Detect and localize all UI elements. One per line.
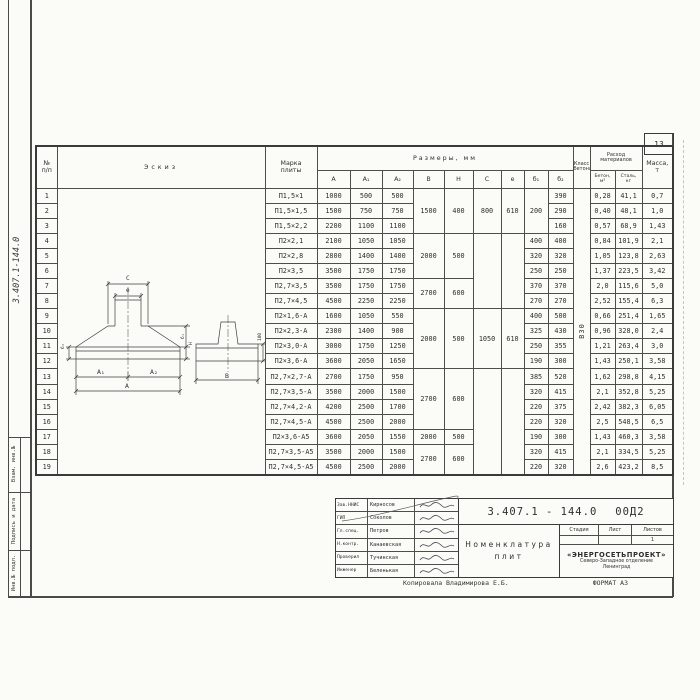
cell-mass: 3,0 [642, 339, 673, 354]
person-role: Гл.спец. [336, 525, 368, 537]
cell-a: 1600 [317, 309, 350, 324]
cell-a: 2200 [317, 218, 350, 233]
cell-a1: 1750 [350, 278, 382, 293]
cell-a1: 1750 [350, 369, 382, 384]
cell-num: 4 [36, 233, 57, 248]
cell-beton: 2,1 [590, 444, 615, 459]
cell-beton: 2,1 [590, 384, 615, 399]
drawing-sheet: { "page": { "sheet_no": "13", "copied": … [0, 0, 700, 700]
cell-mass: 1,0 [642, 203, 673, 218]
cell-a2: 500 [382, 188, 413, 203]
cell-b1: 220 [524, 414, 548, 429]
side-view-outline [196, 322, 258, 361]
cell-steel: 155,4 [615, 294, 642, 309]
cell-b2: 320 [548, 248, 573, 263]
cell-a2: 1700 [382, 399, 413, 414]
header-class-2: бетона [574, 167, 590, 173]
frame-left-inner [30, 0, 32, 596]
cell-num: 7 [36, 278, 57, 293]
cell-a2: 750 [382, 203, 413, 218]
cell-marka: П1,5×1 [265, 188, 317, 203]
cell-mass: 5,25 [642, 384, 673, 399]
cell-a2: 1750 [382, 263, 413, 278]
cell-b2: 290 [548, 203, 573, 218]
cell-b1: 400 [524, 309, 548, 324]
cell-b: 2000 [413, 309, 444, 369]
cell-a2: 900 [382, 324, 413, 339]
cell-mass: 6,3 [642, 294, 673, 309]
sketch-drawing: С е А₁ А₂ А б₂ б₁ Н В 10 [58, 189, 266, 474]
drawing-title: Номенклатура плит [459, 525, 560, 577]
cell-marka: П2,7×4,5 [265, 294, 317, 309]
dim-b-label: В [225, 372, 229, 380]
stage-value [560, 536, 599, 544]
sheets-label: Листов [632, 525, 673, 535]
scan-edge [683, 140, 684, 485]
dim-a2-label: А₂ [150, 368, 158, 376]
cell-a2: 1100 [382, 218, 413, 233]
cell-a: 2300 [317, 324, 350, 339]
dim-b1-label: б₁ [179, 333, 186, 339]
header-col-e: е [501, 170, 524, 188]
cell-b2: 415 [548, 384, 573, 399]
cell-steel: 334,5 [615, 444, 642, 459]
plate-nomenclature-table: № п/п Эскиз Марка плиты Размеры, мм Клас… [35, 145, 674, 476]
cell-a: 2700 [317, 369, 350, 384]
header-steel: Сталь, кг [615, 170, 642, 188]
cell-a1: 2500 [350, 460, 382, 475]
cell-steel: 68,9 [615, 218, 642, 233]
cell-num: 15 [36, 399, 57, 414]
cell-h: 600 [444, 444, 473, 474]
cell-num: 12 [36, 354, 57, 369]
cell-a1: 1050 [350, 309, 382, 324]
dim-a-label: А [125, 382, 129, 390]
cell-marka: П1,5×1,5 [265, 203, 317, 218]
titleblock-person-row: ИнженерБеленькая [336, 565, 458, 577]
cell-a2: 1650 [382, 354, 413, 369]
person-signature [415, 552, 458, 564]
signature-icon [418, 540, 456, 550]
cell-steel: 298,8 [615, 369, 642, 384]
cell-a2: 1250 [382, 339, 413, 354]
cell-a: 1500 [317, 203, 350, 218]
organization-name: «ЭНЕРГОСЕТЬПРОЕКТ» [567, 551, 666, 559]
cell-b1: 400 [524, 233, 548, 248]
cell-steel: 328,0 [615, 324, 642, 339]
cell-b2: 300 [548, 354, 573, 369]
cell-num: 16 [36, 414, 57, 429]
cell-marka: П2,7×3,5 [265, 278, 317, 293]
sheet-value [599, 536, 632, 544]
cell-b1: 270 [524, 294, 548, 309]
header-col-h: Н [444, 170, 473, 188]
cell-steel: 548,5 [615, 414, 642, 429]
cell-mass: 2,63 [642, 248, 673, 263]
table-row: 1 С е А₁ А₂ А б₂ б₁ Н [36, 188, 673, 203]
cell-b: 2700 [413, 369, 444, 429]
titleblock-flourish [338, 495, 463, 523]
frame-bottom [8, 596, 673, 598]
cell-a2: 1500 [382, 384, 413, 399]
cell-marka: П2×2,3-А [265, 324, 317, 339]
cell-b1: 190 [524, 354, 548, 369]
cell-a2: 1050 [382, 233, 413, 248]
cell-a2: 1750 [382, 278, 413, 293]
dim-h-label: Н [188, 342, 194, 345]
cell-mass: 8,5 [642, 460, 673, 475]
person-role: Проверил [336, 552, 368, 564]
header-col-b1: б₁ [524, 170, 548, 188]
cell-b2: 320 [548, 460, 573, 475]
cell-steel: 223,5 [615, 263, 642, 278]
cell-marka: П2,7×3,5-А5 [265, 444, 317, 459]
cell-c [473, 233, 501, 309]
dim-100-label: 100 [257, 332, 263, 340]
cell-a: 4500 [317, 414, 350, 429]
organization-city: Ленинград [603, 565, 631, 571]
cell-a2: 2250 [382, 294, 413, 309]
person-signature [415, 525, 458, 537]
cell-a: 4500 [317, 294, 350, 309]
cell-e [501, 369, 524, 475]
cell-b: 2000 [413, 233, 444, 278]
cell-a1: 1750 [350, 339, 382, 354]
cell-b1: 325 [524, 324, 548, 339]
cell-a1: 500 [350, 188, 382, 203]
cell-a1: 2050 [350, 354, 382, 369]
cell-mass: 3,58 [642, 429, 673, 444]
cell-beton: 1,43 [590, 354, 615, 369]
margin-label-inv: Инв.№ подл. [11, 545, 17, 601]
cell-steel: 263,4 [615, 339, 642, 354]
cell-b2: 500 [548, 309, 573, 324]
cell-a: 3500 [317, 444, 350, 459]
cell-num: 6 [36, 263, 57, 278]
drawing-title-line2: плит [495, 551, 524, 563]
header-mass-2: т [643, 167, 673, 174]
cell-mass: 6,5 [642, 414, 673, 429]
cell-a1: 2500 [350, 399, 382, 414]
copied-by: Копировала Владимирова Е.Б. [403, 579, 509, 587]
cell-beton: 1,05 [590, 248, 615, 263]
margin-label-vzam: Взам. инв.№ [11, 434, 17, 494]
cell-num: 10 [36, 324, 57, 339]
cell-beton: 0,28 [590, 188, 615, 203]
cell-beton: 0,96 [590, 324, 615, 339]
document-number-row: 3.407.1 - 144.0 00Д2 [459, 499, 673, 525]
cell-e: 610 [501, 188, 524, 233]
header-col-a: А [317, 170, 350, 188]
cell-mass: 0,7 [642, 188, 673, 203]
cell-b1: 320 [524, 248, 548, 263]
signature-icon [418, 553, 456, 563]
header-mass: Масса, т [642, 146, 673, 188]
cell-marka: П2×3,0-А [265, 339, 317, 354]
cell-steel: 101,9 [615, 233, 642, 248]
stage-value-row: 1 [560, 536, 673, 545]
cell-beton: 0,84 [590, 233, 615, 248]
organization: «ЭНЕРГОСЕТЬПРОЕКТ» Северо-Западное отдел… [560, 545, 673, 577]
cell-a: 2100 [317, 233, 350, 248]
cell-a1: 1400 [350, 248, 382, 263]
cell-c [473, 369, 501, 475]
header-consumption-2: материалов [591, 158, 642, 164]
person-signature [415, 539, 458, 551]
cell-a: 4500 [317, 460, 350, 475]
cell-beton: 2,42 [590, 399, 615, 414]
cell-mass: 2,1 [642, 233, 673, 248]
cell-marka: П2×3,5 [265, 263, 317, 278]
cell-a: 2800 [317, 248, 350, 263]
cell-num: 18 [36, 444, 57, 459]
cell-a: 3500 [317, 263, 350, 278]
cell-mass: 6,05 [642, 399, 673, 414]
cell-a: 3500 [317, 278, 350, 293]
titleblock-person-row: Гл.спец.Петров [336, 525, 458, 538]
cell-b2: 390 [548, 188, 573, 203]
dim-c-label: С [126, 275, 130, 282]
cell-mass: 1,43 [642, 218, 673, 233]
cell-marka: П2,7×4,2-А [265, 399, 317, 414]
cell-mass: 2,4 [642, 324, 673, 339]
cell-num: 17 [36, 429, 57, 444]
person-role: Инженер [336, 565, 368, 577]
cell-b: 2700 [413, 278, 444, 308]
stage-label: Стадия [560, 525, 599, 535]
dim-b2-label: б₂ [59, 343, 66, 348]
sheets-value: 1 [632, 536, 673, 544]
cell-mass: 4,15 [642, 369, 673, 384]
cell-h: 600 [444, 369, 473, 429]
cell-beton: 2,5 [590, 414, 615, 429]
cell-a2: 1550 [382, 429, 413, 444]
header-beton: Бетон, м³ [590, 170, 615, 188]
cell-num: 9 [36, 309, 57, 324]
cell-a1: 2250 [350, 294, 382, 309]
cell-a2: 1400 [382, 248, 413, 263]
cell-beton: 1,62 [590, 369, 615, 384]
drawing-title-line1: Номенклатура [465, 539, 553, 551]
cell-num: 5 [36, 248, 57, 263]
cell-marka: П1,5×2,2 [265, 218, 317, 233]
header-beton-2: м³ [591, 179, 615, 184]
cell-beton: 1,21 [590, 339, 615, 354]
header-col-a2: А₂ [382, 170, 413, 188]
cell-beton: 1,43 [590, 429, 615, 444]
cell-beton: 1,37 [590, 263, 615, 278]
cell-concrete-class: В30 [573, 188, 590, 475]
cell-num: 8 [36, 294, 57, 309]
signature-icon [418, 526, 456, 536]
header-mass-1: Масса, [643, 160, 673, 167]
cell-c: 800 [473, 188, 501, 233]
cell-b2: 270 [548, 294, 573, 309]
header-num-sub: п/п [37, 167, 57, 174]
cell-marka: П2,7×2,7-А [265, 369, 317, 384]
cell-a1: 2500 [350, 414, 382, 429]
cell-num: 3 [36, 218, 57, 233]
cell-a: 3600 [317, 429, 350, 444]
cell-num: 2 [36, 203, 57, 218]
person-name: Канаевская [368, 539, 415, 551]
side-document-number: 3.407.1-144.0 [12, 225, 22, 315]
cell-num: 1 [36, 188, 57, 203]
header-marka: Марка плиты [265, 146, 317, 188]
title-block-right: 3.407.1 - 144.0 00Д2 Номенклатура плит С… [459, 499, 673, 577]
cell-h: 600 [444, 278, 473, 308]
person-signature [415, 565, 458, 577]
cell-marka: П2,7×4,5-А5 [265, 460, 317, 475]
cell-b1: 220 [524, 399, 548, 414]
cell-a2: 1500 [382, 444, 413, 459]
cell-a: 3000 [317, 339, 350, 354]
cell-a2: 950 [382, 369, 413, 384]
cell-beton: 2,52 [590, 294, 615, 309]
cell-marka: П2×1,6-А [265, 309, 317, 324]
person-name: Петров [368, 525, 415, 537]
cell-b1: 190 [524, 429, 548, 444]
cell-h: 500 [444, 233, 473, 278]
cell-b2: 300 [548, 429, 573, 444]
cell-a1: 2050 [350, 429, 382, 444]
cell-marka: П2×2,1 [265, 233, 317, 248]
sheet-label: Лист [599, 525, 632, 535]
cell-b2: 250 [548, 263, 573, 278]
cell-a1: 2000 [350, 444, 382, 459]
cell-mass: 1,65 [642, 309, 673, 324]
header-col-a1: А₁ [350, 170, 382, 188]
cell-steel: 48,1 [615, 203, 642, 218]
cell-b1: 320 [524, 444, 548, 459]
cell-marka: П2,7×3,5-А [265, 384, 317, 399]
cell-steel: 460,3 [615, 429, 642, 444]
signature-icon [418, 566, 456, 576]
cell-beton: 2,0 [590, 278, 615, 293]
cell-a: 4200 [317, 399, 350, 414]
format-label: ФОРМАТ А3 [593, 579, 628, 587]
header-consumption: Расход материалов [590, 146, 642, 170]
dim-e-label: е [126, 287, 130, 294]
cell-b1: 320 [524, 384, 548, 399]
cell-beton: 0,66 [590, 309, 615, 324]
cell-beton: 0,57 [590, 218, 615, 233]
cell-b1: 220 [524, 460, 548, 475]
cell-marka: П2×3,6-А [265, 354, 317, 369]
cell-a: 3600 [317, 354, 350, 369]
cell-a: 3500 [317, 384, 350, 399]
cell-mass: 5,25 [642, 444, 673, 459]
document-number: 3.407.1 - 144.0 [487, 506, 597, 518]
cell-b2: 520 [548, 369, 573, 384]
cell-a1: 2000 [350, 384, 382, 399]
header-num-top: № [37, 160, 57, 167]
cell-b1: 370 [524, 278, 548, 293]
header-col-b2: б₂ [548, 170, 573, 188]
cell-num: 14 [36, 384, 57, 399]
header-class: Класс бетона [573, 146, 590, 188]
cell-steel: 250,1 [615, 354, 642, 369]
sketch-cell: С е А₁ А₂ А б₂ б₁ Н В 10 [57, 188, 265, 475]
cell-marka: П2,7×4,5-А [265, 414, 317, 429]
cell-b1: 250 [524, 263, 548, 278]
cell-b2: 415 [548, 444, 573, 459]
cell-marka: П2×2,8 [265, 248, 317, 263]
cell-b2: 375 [548, 399, 573, 414]
header-steel-2: кг [616, 179, 642, 184]
cell-h: 500 [444, 309, 473, 369]
cell-a1: 1050 [350, 233, 382, 248]
concrete-class-label: В30 [578, 323, 586, 339]
cell-c: 1050 [473, 309, 501, 369]
margin-inner-line [20, 437, 21, 596]
cell-beton: 0,40 [590, 203, 615, 218]
cell-b2: 355 [548, 339, 573, 354]
document-suffix: 00Д2 [615, 506, 644, 518]
dim-a1-label: А₁ [97, 368, 105, 376]
cell-e [501, 233, 524, 309]
header-marka-1: Марка [266, 160, 317, 167]
cell-a1: 1750 [350, 263, 382, 278]
cell-b2: 400 [548, 233, 573, 248]
person-name: Беленькая [368, 565, 415, 577]
cell-b1: 385 [524, 369, 548, 384]
cell-steel: 382,3 [615, 399, 642, 414]
person-role: Н.контр. [336, 539, 368, 551]
cell-b2: 370 [548, 278, 573, 293]
cell-a2: 2000 [382, 460, 413, 475]
cell-b: 1500 [413, 188, 444, 233]
cell-h: 400 [444, 188, 473, 233]
cell-steel: 41,1 [615, 188, 642, 203]
table-body: 1 С е А₁ А₂ А б₂ б₁ Н [36, 188, 673, 475]
cell-steel: 251,4 [615, 309, 642, 324]
cell-num: 13 [36, 369, 57, 384]
header-col-c: С [473, 170, 501, 188]
table-header: № п/п Эскиз Марка плиты Размеры, мм Клас… [36, 146, 673, 188]
cell-b: 2000 [413, 429, 444, 444]
cell-a2: 550 [382, 309, 413, 324]
cell-steel: 352,8 [615, 384, 642, 399]
cell-a1: 750 [350, 203, 382, 218]
cell-b1: 200 [524, 188, 548, 233]
cell-b2: 320 [548, 414, 573, 429]
cell-h: 500 [444, 429, 473, 444]
cell-marka: П2×3,6-А5 [265, 429, 317, 444]
cell-steel: 123,8 [615, 248, 642, 263]
cell-b2: 160 [548, 218, 573, 233]
cell-e: 610 [501, 309, 524, 369]
cell-a2: 2000 [382, 414, 413, 429]
cell-b2: 430 [548, 324, 573, 339]
titleblock-person-row: Н.контр.Канаевская [336, 539, 458, 552]
cell-a: 1000 [317, 188, 350, 203]
stage-header-row: Стадия Лист Листов [560, 525, 673, 536]
header-sketch: Эскиз [57, 146, 265, 188]
frame-left-outer [8, 0, 9, 596]
titleblock-person-row: ПроверилТучинская [336, 552, 458, 565]
cell-mass: 3,58 [642, 354, 673, 369]
cell-mass: 3,42 [642, 263, 673, 278]
header-marka-2: плиты [266, 167, 317, 174]
cell-num: 19 [36, 460, 57, 475]
cell-mass: 5,0 [642, 278, 673, 293]
cell-a1: 1400 [350, 324, 382, 339]
cell-b1: 250 [524, 339, 548, 354]
cell-a1: 1100 [350, 218, 382, 233]
cell-beton: 2,6 [590, 460, 615, 475]
cell-b: 2700 [413, 444, 444, 474]
